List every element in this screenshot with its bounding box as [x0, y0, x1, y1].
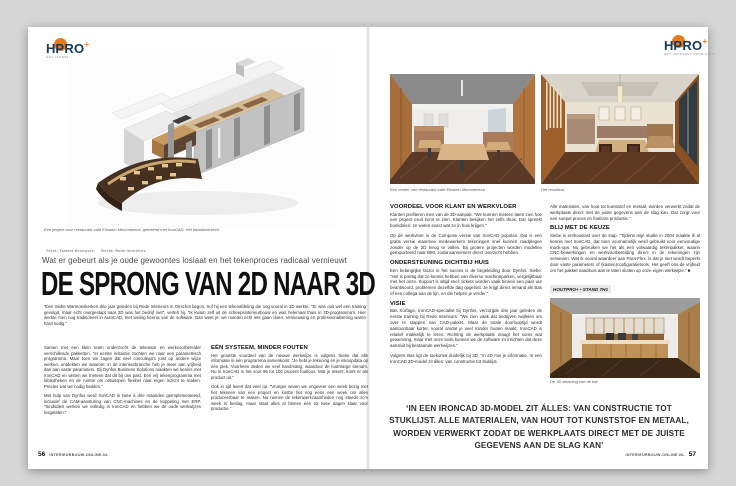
- body-paragraph: Alle materialen, van hout tot kunststof …: [550, 204, 700, 221]
- right-page-column-2: Alle materialen, van hout tot kunststof …: [550, 204, 700, 384]
- right-page-column-1: VOORDEEL VOOR KLANT EN WERKVLOER Klanten…: [390, 204, 542, 369]
- body-paragraph: Klanten profiteren mee van de 3D-aanpak.…: [390, 212, 542, 229]
- body-paragraph: Met hulp van Dynfos werd IronCAD in twee…: [44, 393, 201, 415]
- kicker: Wat er gebeurt als je oude gewoontes los…: [42, 256, 347, 265]
- houtpro-logo-wordmark: HPRO+: [46, 41, 116, 55]
- logo-letters-pro: PRO: [673, 38, 702, 53]
- left-page: HPRO+ HÉT VAKEVENT VOOR HOUT: [28, 27, 368, 469]
- byline: Tekst: Tamara Brouwers Beeld: Rede Inter…: [46, 249, 152, 253]
- logo-tagline: HÉT VAKEVENT VOOR HOUT: [664, 53, 734, 56]
- body-paragraph: Volgens Bas ligt de toekomst duidelijk b…: [390, 353, 542, 365]
- logo-plus-sign: +: [84, 40, 89, 49]
- houtpro-logo-wordmark: HPRO+: [664, 38, 734, 52]
- left-page-footer: 56 INTERIEURBOUW-ONLINE.NL: [38, 451, 109, 458]
- interior-photo-image: [541, 74, 699, 184]
- headline: DE SPRONG VAN 2D NAAR 3D: [41, 265, 375, 303]
- section-heading: ONDERSTEUNING DICHTBIJ HUIS: [390, 260, 542, 266]
- bar-caption: De 3D-tekening van de bar.: [550, 380, 700, 385]
- right-page: HPRO+ HÉT VAKEVENT VOOR HOUT: [368, 27, 708, 469]
- right-page-footer: INTERIEURBOUW-ONLINE.NL 57: [625, 451, 696, 458]
- body-paragraph: Op de werkvloer is de Compose versie van…: [390, 233, 542, 256]
- byline-text-credit: Tekst: Tamara Brouwers: [46, 249, 94, 253]
- magazine-spread: HPRO+ HÉT VAKEVENT VOOR HOUT: [28, 27, 708, 469]
- hero-3d-overview-image: [68, 55, 336, 227]
- logo-letters-pro: PRO: [55, 41, 84, 56]
- body-paragraph: Een belangrijke factor in het succes is …: [390, 268, 542, 297]
- logo-plus-sign: +: [702, 37, 707, 46]
- cad-render-bar: [550, 298, 700, 378]
- lede-paragraph: Toen Siebe Warmoeskerken drie jaar geled…: [44, 304, 366, 326]
- photo-caption: Het resultaat.: [541, 188, 699, 193]
- body-paragraph: Het grootste voordeel van de nieuwe werk…: [211, 353, 368, 381]
- magazine-site: INTERIEURBOUW-ONLINE.NL: [625, 453, 684, 457]
- section-heading: BLIJ MET DE KEUZE: [550, 225, 700, 231]
- logo-letter-h: H: [664, 38, 673, 53]
- body-paragraph: Bas Korfage, IronCAD-specialist bij Dynf…: [390, 308, 542, 349]
- page-number: 57: [689, 451, 696, 458]
- body-paragraph: Samen met een klein team onderzocht de t…: [44, 345, 201, 389]
- pull-quote: ‘IN EEN IRONCAD 3D-MODEL ZIT ÁLLES: VAN …: [386, 403, 692, 452]
- section-heading: EÉN SYSTEEM, MINDER FOUTEN: [211, 345, 368, 351]
- left-page-column-2: EÉN SYSTEEM, MINDER FOUTEN Het grootste …: [211, 345, 368, 419]
- section-heading: VISIE: [390, 301, 542, 307]
- body-paragraph: Ook in tijd levert dat veel op. “Vroeger…: [211, 384, 368, 412]
- body-paragraph: Siebe is enthousiast over de stap. “Tijd…: [550, 233, 700, 274]
- left-page-column-1: Samen met een klein team onderzocht de t…: [44, 345, 201, 419]
- houtpro-logo: HPRO+ HÉT VAKEVENT VOOR HOUT: [664, 38, 734, 56]
- cad-render-interior: [390, 74, 535, 184]
- render-caption: Een render van restaurant-café Einstein …: [390, 188, 535, 193]
- bar-render-image: [550, 298, 700, 378]
- isometric-restaurant-model: [68, 55, 336, 227]
- byline-image-credit: Beeld: Rede Interieurs: [101, 249, 146, 253]
- page-number: 56: [38, 451, 45, 458]
- finished-interior-photo: [541, 74, 699, 184]
- event-stand-tag: HOUTPRO+ • STAND 7H1: [550, 285, 611, 293]
- logo-letter-h: H: [46, 41, 55, 56]
- interior-render-image: [390, 74, 535, 184]
- hero-caption: Een project voor restaurant-café Einstei…: [44, 228, 354, 233]
- magazine-site: INTERIEURBOUW-ONLINE.NL: [49, 453, 108, 457]
- left-page-columns: Samen met een klein team onderzocht de t…: [44, 345, 368, 419]
- section-heading: VOORDEEL VOOR KLANT EN WERKVLOER: [390, 204, 542, 210]
